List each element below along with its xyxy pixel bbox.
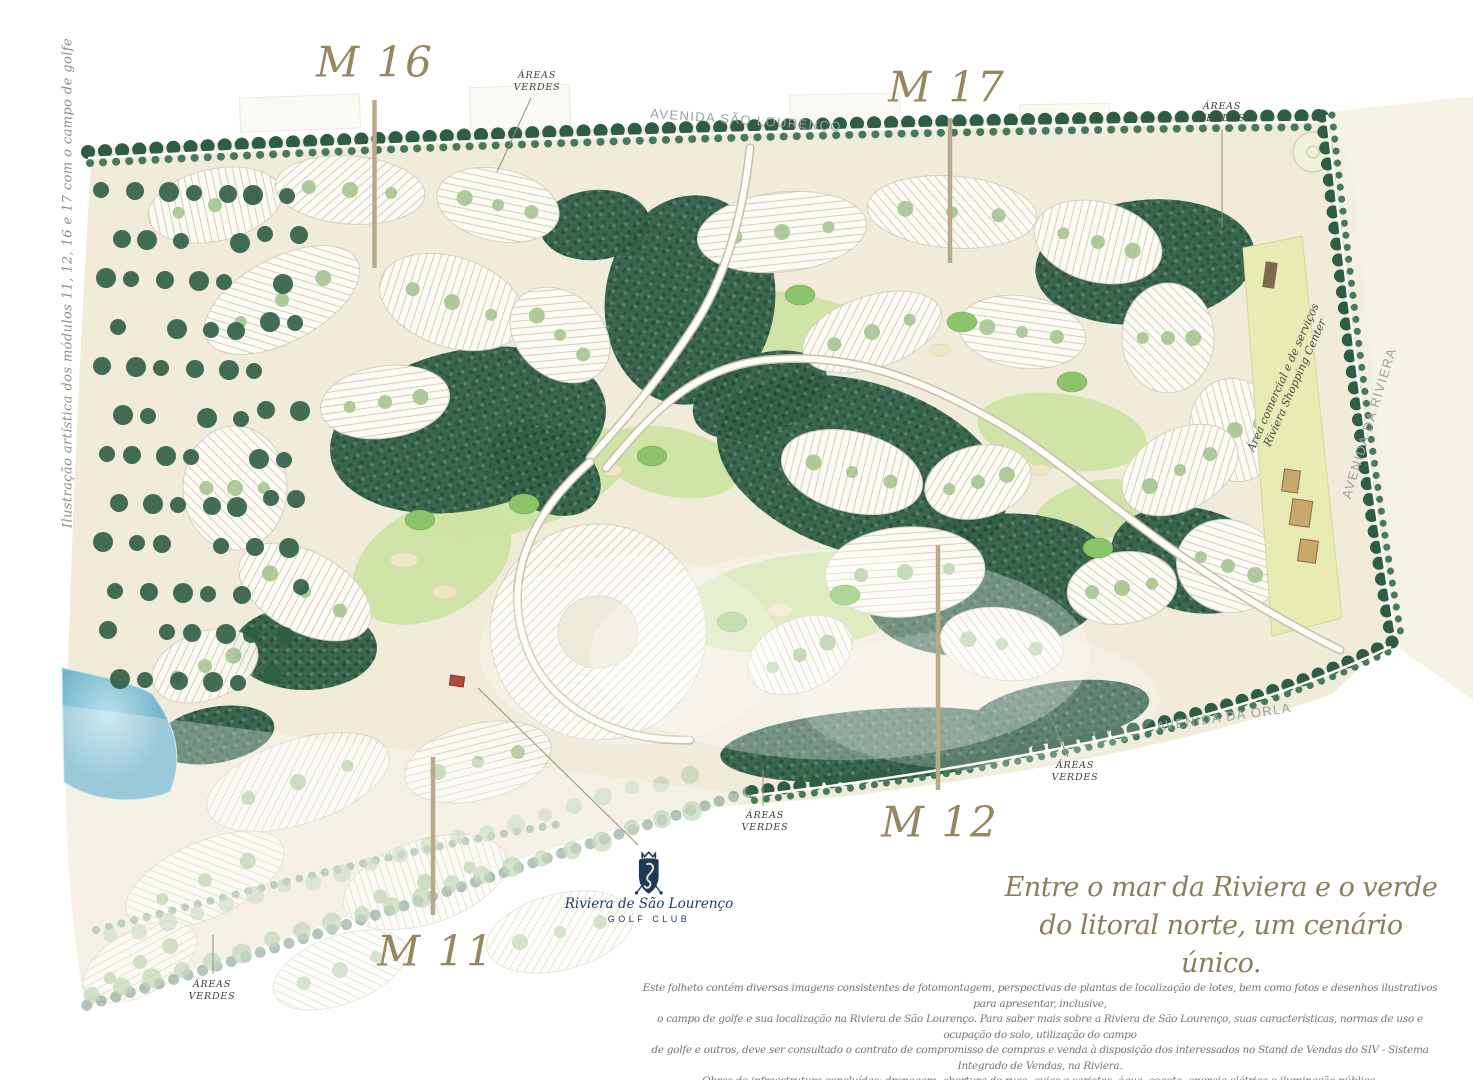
areas-verdes-label-bottom-center: ÁREASVERDES <box>742 810 789 833</box>
areas-verdes-label-top-left: ÁREASVERDES <box>514 70 561 93</box>
areas-verdes-label-top-right: ÁREASVERDES <box>1199 101 1246 124</box>
module-label-m12: M 12 <box>881 798 999 847</box>
module-label-m11: M 11 <box>377 927 495 976</box>
areas-verdes-label-bottom-left: ÁREASVERDES <box>189 979 236 1002</box>
club-type: GOLF CLUB <box>565 914 733 924</box>
disclaimer-line-4: Obras de infraestrutura concluídas: dren… <box>640 1074 1440 1080</box>
module-label-m16: M 16 <box>316 38 434 87</box>
disclaimer-line-2: o campo de golfe e sua localização na Ri… <box>640 1012 1440 1043</box>
golf-club-logo: Riviera de São Lourenço GOLF CLUB <box>565 851 733 924</box>
module-label-m17: M 17 <box>888 63 1006 112</box>
golf-club-crest-icon <box>632 851 666 897</box>
tagline-line-2: do litoral norte, um cenário único. <box>1000 907 1442 983</box>
golf-clubhouse <box>449 675 464 687</box>
areas-verdes-label-mid: ÁREASVERDES <box>1052 760 1099 783</box>
disclaimer-line-3: de golfe e outros, deve ser consultado o… <box>640 1043 1440 1074</box>
tagline-line-1: Entre o mar da Riviera e o verde <box>1000 869 1442 907</box>
brochure-page: Ilustração artística dos módulos 11, 12,… <box>0 0 1473 1080</box>
disclaimer-text: Este folheto contém diversas imagens con… <box>640 981 1440 1080</box>
disclaimer-line-1: Este folheto contém diversas imagens con… <box>640 981 1440 1012</box>
tagline: Entre o mar da Riviera e o verde do lito… <box>1000 869 1442 983</box>
club-name: Riviera de São Lourenço <box>565 897 733 912</box>
illustration-caption: Ilustração artística dos módulos 11, 12,… <box>61 38 76 528</box>
